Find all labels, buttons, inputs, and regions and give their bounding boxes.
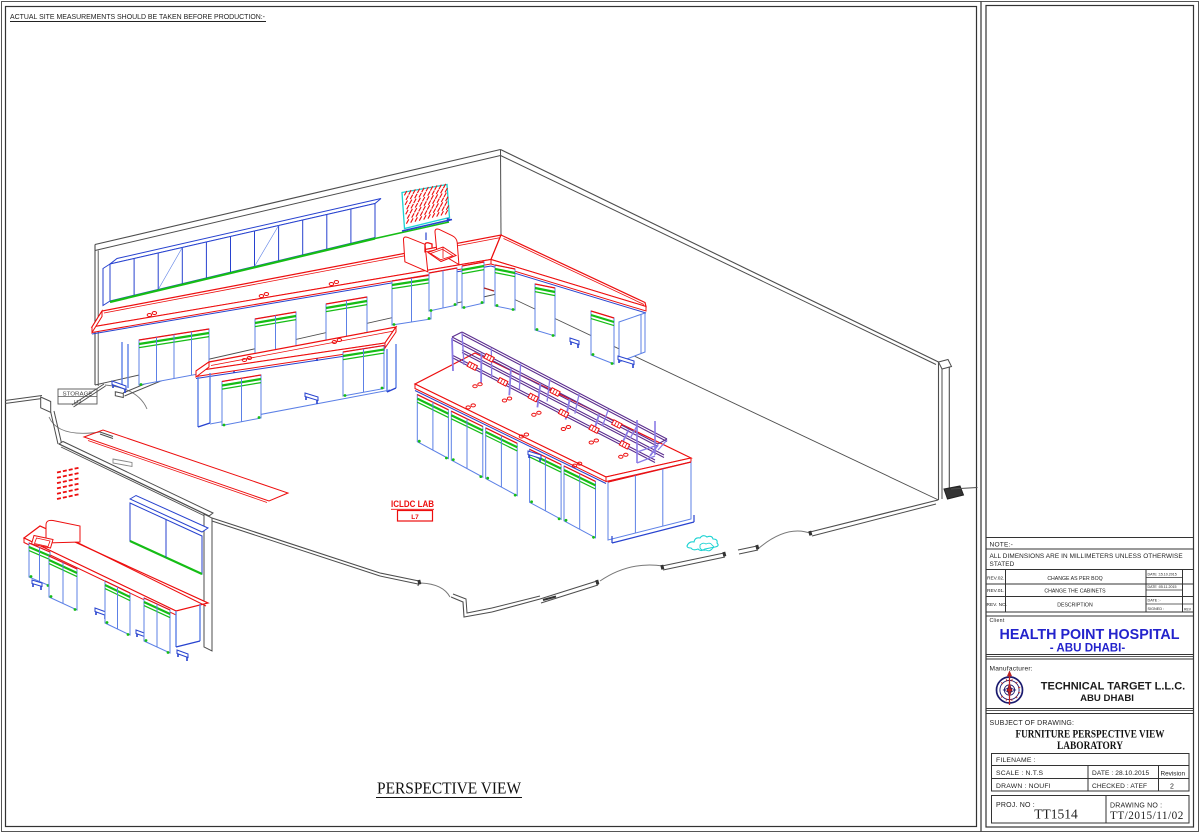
svg-text:REV. NO.: REV. NO. <box>987 602 1008 608</box>
svg-text:CHANGE AS PER BOQ: CHANGE AS PER BOQ <box>1047 576 1102 582</box>
svg-text:L13: L13 <box>74 399 82 404</box>
svg-text:2: 2 <box>1170 784 1174 791</box>
svg-text:PERSPECTIVE VIEW: PERSPECTIVE VIEW <box>377 779 522 798</box>
svg-text:ACTUAL SITE MEASUREMENTS SHOUL: ACTUAL SITE MEASUREMENTS SHOULD BE TAKEN… <box>10 12 265 21</box>
svg-text:STORAGE: STORAGE <box>63 392 94 398</box>
svg-text:TECHNICAL TARGET L.L.C.: TECHNICAL TARGET L.L.C. <box>1041 681 1185 693</box>
svg-text:LABORATORY: LABORATORY <box>1057 738 1123 752</box>
svg-text:DRAWN : NOUFI: DRAWN : NOUFI <box>996 783 1051 790</box>
svg-text:SIGNED :: SIGNED : <box>1148 607 1165 611</box>
svg-text:ABU DHABI: ABU DHABI <box>1080 693 1134 704</box>
svg-text:- ABU DHABI-: - ABU DHABI- <box>1050 642 1126 655</box>
svg-text:SCALE : N.T.S: SCALE : N.T.S <box>996 770 1043 777</box>
svg-text:ALL DIMENSIONS ARE IN MILLIMET: ALL DIMENSIONS ARE IN MILLIMETERS UNLESS… <box>990 553 1183 560</box>
svg-text:REV: REV <box>1184 608 1192 612</box>
svg-text:CHANGE THE CABINETS: CHANGE THE CABINETS <box>1044 589 1106 595</box>
svg-text:REV.02.: REV.02. <box>987 576 1004 582</box>
svg-text:DESCRIPTION: DESCRIPTION <box>1057 603 1093 609</box>
svg-text:ICLDC LAB: ICLDC LAB <box>391 499 434 509</box>
svg-text:CHECKED : ATEF: CHECKED : ATEF <box>1092 783 1147 790</box>
svg-text:Client: Client <box>990 618 1005 624</box>
svg-text:NOTE:-: NOTE:- <box>990 542 1014 549</box>
svg-text:L7: L7 <box>411 514 419 521</box>
svg-text:DRAWING NO :: DRAWING NO : <box>1110 803 1162 810</box>
svg-text:DATE :15.10.2015: DATE :15.10.2015 <box>1148 573 1177 577</box>
svg-text:TT1514: TT1514 <box>1034 807 1078 822</box>
svg-text:DATE : 28.10.2015: DATE : 28.10.2015 <box>1092 770 1150 777</box>
svg-text:FILENAME :: FILENAME : <box>996 757 1036 764</box>
svg-text:TT/2015/11/02: TT/2015/11/02 <box>1110 810 1184 822</box>
svg-text:REV.01.: REV.01. <box>987 588 1004 594</box>
svg-text:Manufacturer:: Manufacturer: <box>990 666 1033 673</box>
svg-text:PROJ. NO :: PROJ. NO : <box>996 802 1035 809</box>
svg-text:STATED: STATED <box>990 561 1015 568</box>
svg-text:DATE :05.11.2015: DATE :05.11.2015 <box>1148 585 1177 589</box>
svg-text:Revision: Revision <box>1161 771 1186 778</box>
svg-text:DATE :-: DATE :- <box>1148 599 1162 603</box>
